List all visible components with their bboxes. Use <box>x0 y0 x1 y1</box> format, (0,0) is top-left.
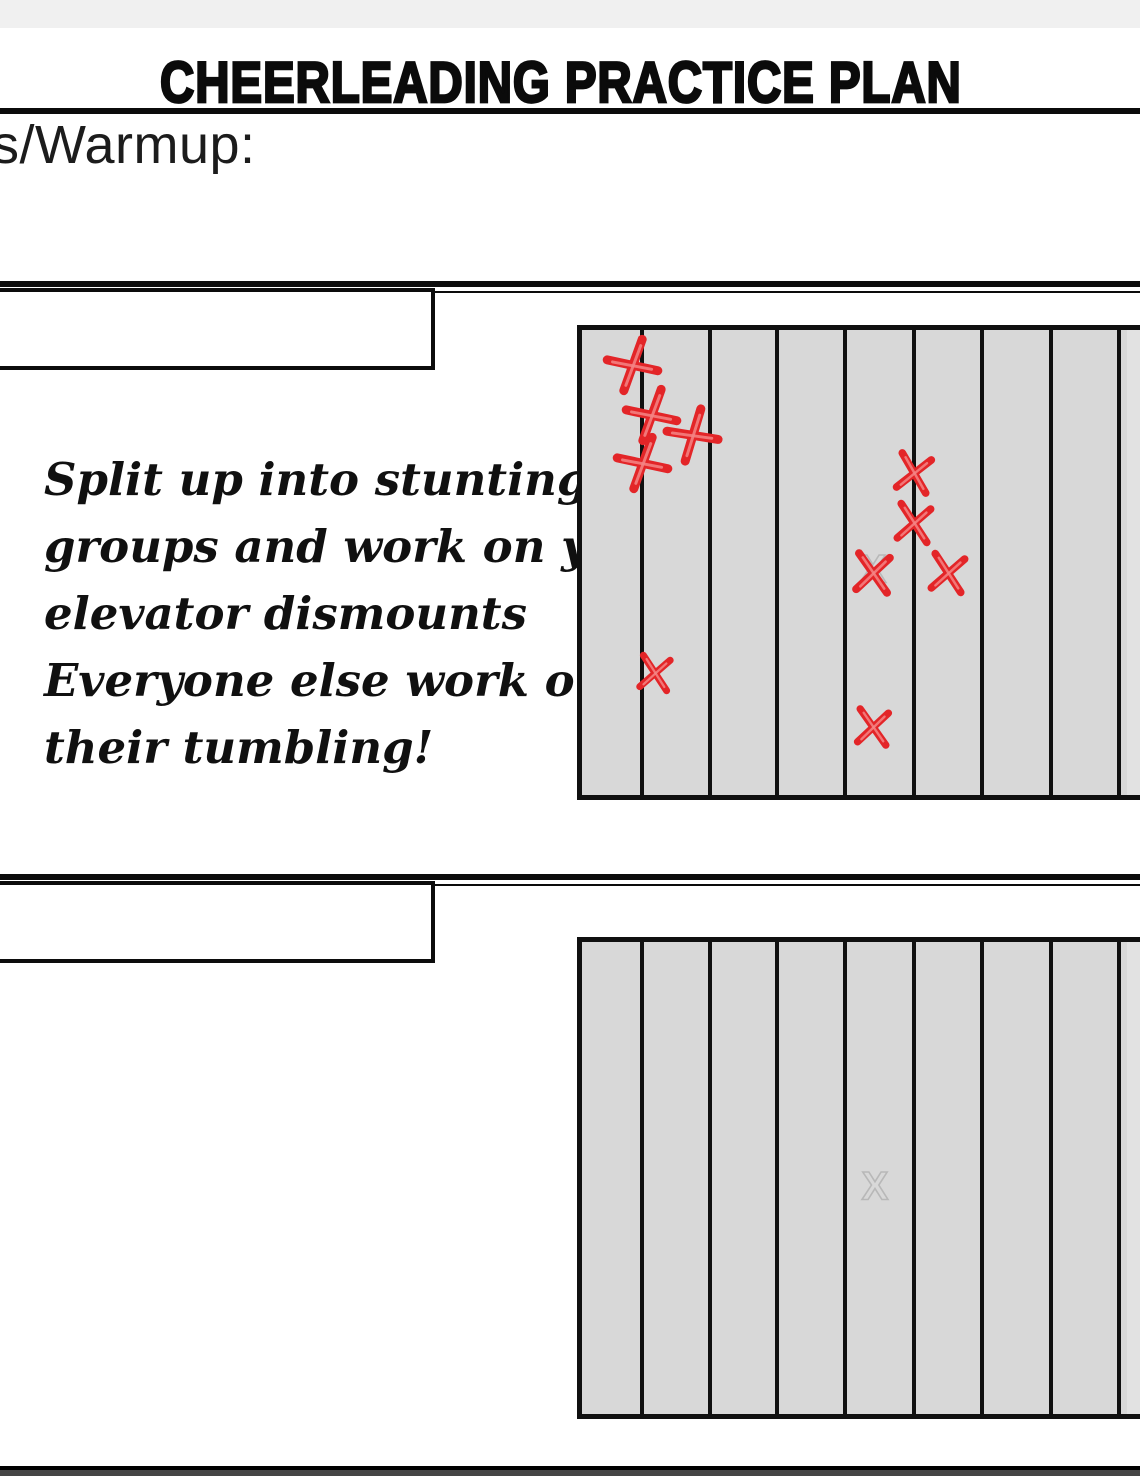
red-x-mark <box>632 650 678 696</box>
mat-strip-line <box>1049 330 1053 795</box>
note-line: their tumbling! <box>44 714 564 781</box>
mat-strip-line <box>980 942 984 1414</box>
warmup-field-label: s/Warmup: <box>0 114 256 176</box>
mat-diagram-empty: X <box>577 937 1140 1419</box>
red-x-mark <box>889 498 939 548</box>
mat-strip-line <box>1117 330 1121 795</box>
mat-strip-line <box>775 330 779 795</box>
mat-diagram-stunting: X <box>577 325 1140 800</box>
mat-strip-line <box>843 330 847 795</box>
mat-strip-line <box>1049 942 1053 1414</box>
section-3-divider-partial <box>0 1466 1140 1476</box>
page-top-strip <box>0 0 1140 28</box>
red-x-mark <box>923 548 973 598</box>
page-title: CHEERLEADING PRACTICE PLAN <box>160 50 962 116</box>
mat-edge-strip <box>1127 942 1140 1414</box>
note-line: elevator dismounts <box>44 580 564 647</box>
section-1-entry-box <box>0 288 435 370</box>
red-x-mark <box>850 704 896 750</box>
watermark-x: X <box>862 1165 889 1210</box>
note-line: Split up into stunting <box>44 446 564 513</box>
note-line: Everyone else work on <box>44 647 564 714</box>
practice-plan-page: CHEERLEADING PRACTICE PLAN s/Warmup: Spl… <box>0 0 1140 1476</box>
mat-strip-line <box>640 942 644 1414</box>
mat-strip-line <box>708 942 712 1414</box>
mat-strip-line <box>775 942 779 1414</box>
red-x-mark <box>888 447 940 499</box>
mat-strip-line <box>1117 942 1121 1414</box>
mat-strip-line <box>843 942 847 1414</box>
red-x-mark <box>848 548 898 598</box>
mat-edge-strip <box>1127 330 1140 795</box>
section-1-divider <box>0 281 1140 287</box>
note-line: groups and work on your <box>44 513 564 580</box>
mat-strip-line <box>912 330 916 795</box>
handwritten-note: Split up into stunting groups and work o… <box>44 446 564 781</box>
mat-strip-line <box>912 942 916 1414</box>
mat-strip-line <box>708 330 712 795</box>
mat-strip-line <box>980 330 984 795</box>
section-2-divider <box>0 874 1140 880</box>
section-2-entry-box <box>0 881 435 963</box>
